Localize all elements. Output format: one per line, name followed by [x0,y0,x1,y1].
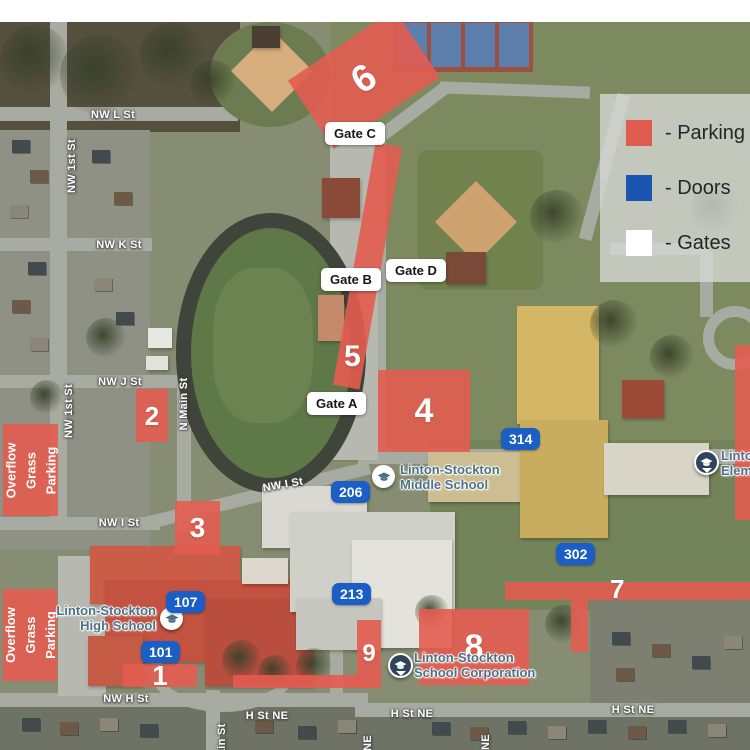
door-badge-314: 314 [501,428,540,450]
parking-strip [233,675,363,688]
street-label-ne: NE [362,735,374,750]
tennis-court [431,23,461,67]
parking-area-label: 4 [415,394,434,428]
tree [60,35,140,115]
elementary-building [604,443,709,495]
map-legend: - Parking - Doors - Gates [600,94,750,282]
parking-area-4: 4 [378,370,470,452]
top-margin-band [0,0,750,22]
door-badge-213: 213 [332,583,371,605]
school-icon [372,465,395,488]
house [30,338,48,351]
school-icon [694,450,719,475]
parking-area-7 [505,582,750,600]
legend-item-parking: - Parking [626,120,750,146]
door-badge-302: 302 [556,543,595,565]
street-label-nw-1st-st: NW 1st St [63,384,75,438]
doors-swatch [626,175,652,201]
street-label-nw-1st-st: NW 1st St [66,139,78,193]
poi-elementary: Linton-StocktonElementary [721,449,750,478]
house [140,724,158,737]
street-label-h-st-ne: H St NE [612,704,654,716]
parking-area-label: 5 [344,342,361,372]
gate-label-d: Gate D [386,259,446,282]
parking-area-2: 2 [136,389,168,442]
football-field [213,268,313,423]
overflow-parking-label: OverflowGrassParking [3,607,57,663]
tree [650,335,694,379]
road [0,375,190,388]
house [668,720,686,733]
legend-item-gates: - Gates [626,230,750,256]
overflow-grass-parking-north: OverflowGrassParking [3,424,58,516]
door-badge-107: 107 [166,591,205,613]
house [724,636,742,649]
gate-label-c: Gate C [325,122,385,145]
street-label-main-st: Main St [216,723,228,750]
gate-label-a: Gate A [307,392,366,415]
building [242,558,288,584]
gates-swatch [626,230,652,256]
house [12,140,30,153]
house [114,192,132,205]
parking-area-label: 7 [610,576,624,602]
street-label-nw-l-st: NW L St [91,109,135,121]
building [148,328,172,348]
house [28,262,46,275]
street-label-nw-h-st: NW H St [103,693,148,705]
gate-label-b: Gate B [321,268,381,291]
parking-area-9: 9 [357,620,381,688]
parking-swatch [626,120,652,146]
house [588,720,606,733]
tree [30,380,64,414]
tennis-court [465,23,495,67]
house [432,722,450,735]
legend-label: - Gates [665,232,731,255]
legend-item-doors: - Doors [626,175,750,201]
building [252,26,280,48]
parking-strip [571,600,588,652]
building [446,252,486,284]
parking-area-3: 3 [175,501,220,554]
house [298,726,316,739]
street-label-nw-i-st: NW I St [99,517,140,529]
house [612,632,630,645]
tree [530,190,584,244]
house [12,300,30,313]
parking-area-label: 3 [190,514,206,542]
street-label-ne: NE [480,734,492,750]
house [22,718,40,731]
house [692,656,710,669]
tennis-court [499,23,529,67]
house [94,278,112,291]
house [508,721,526,734]
parking-strip [735,345,750,520]
tree [190,60,236,106]
poi-high-school: Linton-StocktonHigh School [56,604,156,633]
building [622,380,664,418]
house [10,205,28,218]
parking-area-label: 2 [145,403,159,429]
building [318,295,344,341]
parking-area-1: 1 [123,664,197,687]
building [146,356,168,370]
house [548,726,566,739]
door-badge-101: 101 [141,641,180,663]
house [338,720,356,733]
legend-label: - Doors [665,177,731,200]
house [616,668,634,681]
elementary-building [517,306,599,424]
poi-middle-school: Linton-StocktonMiddle School [400,463,500,492]
parking-area-label: 1 [152,662,168,690]
map-canvas[interactable]: 6 5 4 2 3 1 9 8 7 OverflowGrassParking O… [0,0,750,750]
tree [222,640,262,680]
tree [590,300,638,348]
overflow-grass-parking-south: OverflowGrassParking [3,589,57,681]
legend-label: - Parking [665,122,745,145]
house [708,724,726,737]
house [92,150,110,163]
street-label-h-st-ne: H St NE [391,708,433,720]
school-icon [388,653,413,678]
tree [0,25,70,95]
building [322,178,360,218]
street-label-nw-j-st: NW J St [98,376,142,388]
door-badge-206: 206 [331,481,370,503]
street-label-n-main-st: N Main St [178,378,190,431]
residential-area [590,600,750,708]
overflow-parking-label: OverflowGrassParking [3,442,58,498]
street-label-nw-k-st: NW K St [96,239,141,251]
parking-area-label: 9 [362,642,375,666]
house [60,722,78,735]
house [628,726,646,739]
house [30,170,48,183]
street-label-h-st-ne: H St NE [246,710,288,722]
parking-area-label: 6 [345,57,384,100]
house [652,644,670,657]
poi-school-corporation: Linton-StocktonSchool Corporation [414,651,535,680]
house [100,718,118,731]
tree [86,318,126,358]
